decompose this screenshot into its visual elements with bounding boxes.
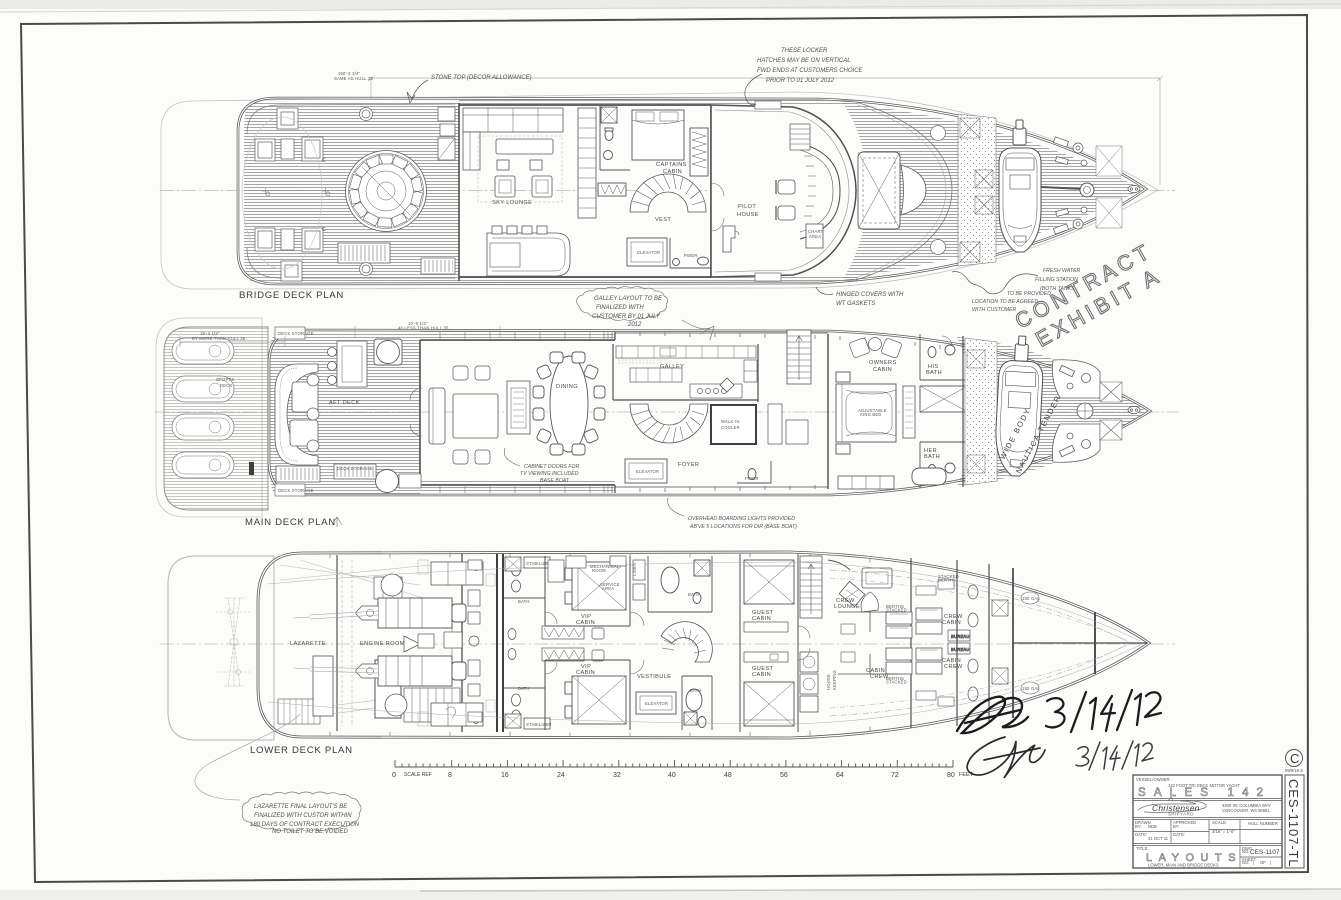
svg-text:180 DAYS OF CONTRACT EXECUTION: 180 DAYS OF CONTRACT EXECUTION	[250, 822, 360, 828]
svg-text:LOWER DECK PLAN: LOWER DECK PLAN	[250, 745, 353, 756]
svg-text:BATH: BATH	[518, 599, 530, 604]
svg-text:C: C	[1290, 751, 1299, 766]
svg-text:31 OCT 11: 31 OCT 11	[1148, 836, 1169, 841]
svg-text:AB'VE 5 LOCATIONS FOR DIR (: AB'VE 5 LOCATIONS FOR DIR (BASE BOAT)	[689, 524, 797, 530]
svg-text:72: 72	[891, 772, 899, 779]
svg-text:NO TOILET TO BE VOIDED: NO TOILET TO BE VOIDED	[272, 829, 348, 835]
svg-text:BY MORE THAN HULL 35: BY MORE THAN HULL 35	[192, 336, 246, 341]
svg-text:COOLER: COOLER	[721, 425, 740, 430]
svg-text:STONE TOP (DECOR ALLOWANCE): STONE TOP (DECOR ALLOWANCE)	[431, 75, 532, 81]
svg-text:NO:: NO:	[1242, 849, 1249, 854]
svg-text:150 GAL: 150 GAL	[1022, 686, 1040, 691]
svg-text:ELEVATOR: ELEVATOR	[636, 469, 659, 474]
svg-text:CABIN: CABIN	[942, 620, 961, 626]
svg-text:AFT DECK: AFT DECK	[329, 400, 360, 406]
svg-text:ELEVATOR: ELEVATOR	[645, 701, 668, 706]
svg-text:ENGINE ROOM: ENGINE ROOM	[360, 641, 405, 647]
svg-text:BY:: BY:	[1173, 824, 1180, 829]
svg-text:SPORTS: SPORTS	[216, 377, 234, 382]
svg-text:C: C	[322, 227, 326, 233]
svg-text:CREW: CREW	[944, 664, 963, 670]
svg-text:AREA: AREA	[602, 586, 614, 591]
svg-text:CABINET DOORS FOR: CABINET DOORS FOR	[524, 464, 580, 470]
svg-text:32: 32	[613, 772, 621, 779]
svg-text:8: 8	[448, 772, 452, 779]
svg-text:HOUSE: HOUSE	[737, 212, 759, 218]
svg-text:BUREAU: BUREAU	[951, 647, 970, 652]
svg-text:LAZARETTE FINAL LAYOUT'S BE: LAZARETTE FINAL LAYOUT'S BE	[254, 804, 348, 810]
svg-text:SAME AS HULL 35: SAME AS HULL 35	[334, 76, 373, 81]
svg-text:40: 40	[668, 772, 676, 779]
svg-text:KING BED: KING BED	[860, 412, 882, 417]
svg-text:CABIN: CABIN	[752, 616, 771, 622]
svg-text:AREA: AREA	[809, 234, 821, 239]
svg-text:BATH: BATH	[926, 370, 942, 376]
svg-text:FRESH WATER: FRESH WATER	[1043, 268, 1081, 274]
svg-text:WALK-IN: WALK-IN	[721, 419, 740, 424]
svg-text:GALLEY LAYOUT TO BE: GALLEY LAYOUT TO BE	[594, 296, 663, 302]
svg-text:DECK STORAGE: DECK STORAGE	[278, 488, 314, 493]
svg-text:LINEN: LINEN	[632, 563, 637, 576]
svg-text:WITH CUSTOMER: WITH CUSTOMER	[972, 307, 1017, 313]
svg-text:48: 48	[724, 772, 732, 779]
svg-text:80: 80	[947, 772, 955, 779]
svg-text:BATH: BATH	[518, 686, 530, 691]
svg-text:BATH: BATH	[924, 454, 940, 460]
svg-text:STACKED: STACKED	[886, 608, 907, 613]
svg-text:CABIN: CABIN	[576, 670, 595, 676]
svg-text:DATE:: DATE:	[1135, 832, 1147, 837]
svg-text:TITLE:: TITLE:	[1136, 846, 1149, 851]
svg-text:09/9/16 S: 09/9/16 S	[1285, 768, 1303, 773]
svg-text:HOUSE: HOUSE	[826, 674, 831, 690]
svg-text:OWNERS: OWNERS	[869, 360, 897, 366]
svg-text:VEST: VEST	[655, 217, 671, 223]
svg-text:VANCOUVER, WA 98661: VANCOUVER, WA 98661	[1222, 808, 1270, 813]
svg-text:BASE BOAT: BASE BOAT	[540, 478, 570, 484]
svg-text:GALLEY: GALLEY	[660, 364, 684, 370]
svg-text:|: |	[1270, 860, 1271, 865]
svg-text:ELEVATOR: ELEVATOR	[637, 250, 660, 255]
svg-text:CAPTAINS: CAPTAINS	[656, 162, 687, 168]
svg-text:LOWER, MAIN AND BRIDGE DECKS: LOWER, MAIN AND BRIDGE DECKS	[1148, 863, 1219, 868]
svg-text:OF: OF	[1260, 860, 1266, 865]
svg-text:NO:: NO:	[1242, 860, 1249, 865]
svg-text:WT GASKETS: WT GASKETS	[836, 301, 875, 307]
svg-text:VESTIBULE: VESTIBULE	[637, 674, 671, 680]
svg-text:FINALIZED WITH: FINALIZED WITH	[596, 305, 644, 311]
svg-text:C: C	[322, 158, 326, 164]
svg-text:CABIN: CABIN	[873, 367, 892, 373]
svg-text:DINING: DINING	[556, 384, 578, 390]
svg-text:BY:: BY:	[1135, 824, 1142, 829]
svg-text:THESE LOCKER: THESE LOCKER	[781, 48, 828, 54]
svg-text:PWDR: PWDR	[745, 476, 759, 481]
svg-text:HATCHES MAY BE ON VERTICAL: HATCHES MAY BE ON VERTICAL	[757, 58, 851, 64]
svg-text:NDB: NDB	[1148, 824, 1157, 829]
svg-text:CES-1107-TL: CES-1107-TL	[1286, 779, 1301, 867]
svg-text:150 GAL: 150 GAL	[1022, 596, 1040, 601]
svg-text:DECK: DECK	[220, 383, 232, 388]
svg-text:CUSTOMER BY 01 JULY: CUSTOMER BY 01 JULY	[592, 314, 661, 320]
svg-text:CABIN: CABIN	[752, 672, 771, 678]
svg-text:HINGED COVERS WITH: HINGED COVERS WITH	[836, 292, 904, 298]
svg-text:BATH: BATH	[688, 592, 700, 597]
svg-text:16: 16	[501, 772, 509, 779]
svg-text:BUREAU: BUREAU	[951, 634, 970, 639]
svg-text:OVERHEAD BOARDING LIGHTS PROVI: OVERHEAD BOARDING LIGHTS PROVIDED	[688, 516, 795, 522]
svg-text:ROOM: ROOM	[592, 568, 606, 573]
svg-text:CABIN: CABIN	[576, 620, 595, 626]
svg-text:40 LESS THAN HULL 35: 40 LESS THAN HULL 35	[398, 326, 449, 331]
svg-text:FWD ENDS AT CUSTOMERS CHOICE: FWD ENDS AT CUSTOMERS CHOICE	[757, 68, 864, 74]
svg-text:FOYER: FOYER	[678, 462, 699, 468]
svg-text:STABILIZER: STABILIZER	[526, 722, 552, 727]
svg-text:BRIDGE DECK PLAN: BRIDGE DECK PLAN	[239, 290, 344, 301]
svg-text:DATE:: DATE:	[1173, 832, 1185, 837]
svg-text:64: 64	[836, 772, 844, 779]
svg-text:MAIN DECK PLAN: MAIN DECK PLAN	[245, 517, 336, 528]
svg-text:FINALIZED WITH CUSTOR WITHIN: FINALIZED WITH CUSTOR WITHIN	[254, 813, 352, 819]
svg-text:TV VIEWING INCLUDED: TV VIEWING INCLUDED	[520, 471, 579, 477]
svg-text:0: 0	[392, 772, 396, 779]
svg-text:LOUNGE: LOUNGE	[834, 604, 860, 610]
svg-text:PILOT: PILOT	[738, 204, 756, 210]
svg-text:SCALE:: SCALE:	[1212, 820, 1227, 825]
svg-text:BERTHS: BERTHS	[938, 578, 956, 583]
svg-text:2012: 2012	[627, 322, 642, 328]
svg-text:LAZARETTE: LAZARETTE	[290, 641, 326, 647]
svg-text:SKY LOUNGE: SKY LOUNGE	[492, 200, 532, 206]
svg-text:VESSEL/OWNER: VESSEL/OWNER	[1136, 777, 1170, 782]
svg-text:SCALE REF: SCALE REF	[404, 772, 432, 778]
svg-text:SHIPYARD: SHIPYARD	[1168, 812, 1194, 817]
svg-text:PRIOR TO 01 JULY 2012: PRIOR TO 01 JULY 2012	[766, 78, 835, 84]
svg-text:SALES 142: SALES 142	[1138, 787, 1271, 799]
svg-text:STACKED: STACKED	[886, 680, 907, 685]
svg-text:DECK STORAGE: DECK STORAGE	[337, 466, 373, 471]
svg-text:3/16" = 1'-0": 3/16" = 1'-0"	[1212, 829, 1235, 834]
svg-text:56: 56	[780, 772, 788, 779]
svg-text:CES-1107: CES-1107	[1250, 849, 1280, 856]
svg-text:PWDR: PWDR	[684, 253, 698, 258]
svg-text:KEEPING: KEEPING	[832, 670, 837, 690]
svg-text:DECK STORAGE: DECK STORAGE	[278, 331, 314, 336]
svg-text:BATH: BATH	[690, 688, 702, 693]
svg-text:|: |	[1253, 860, 1254, 865]
svg-text:HULL NUMBER: HULL NUMBER	[1248, 821, 1278, 826]
svg-text:24: 24	[557, 772, 565, 779]
